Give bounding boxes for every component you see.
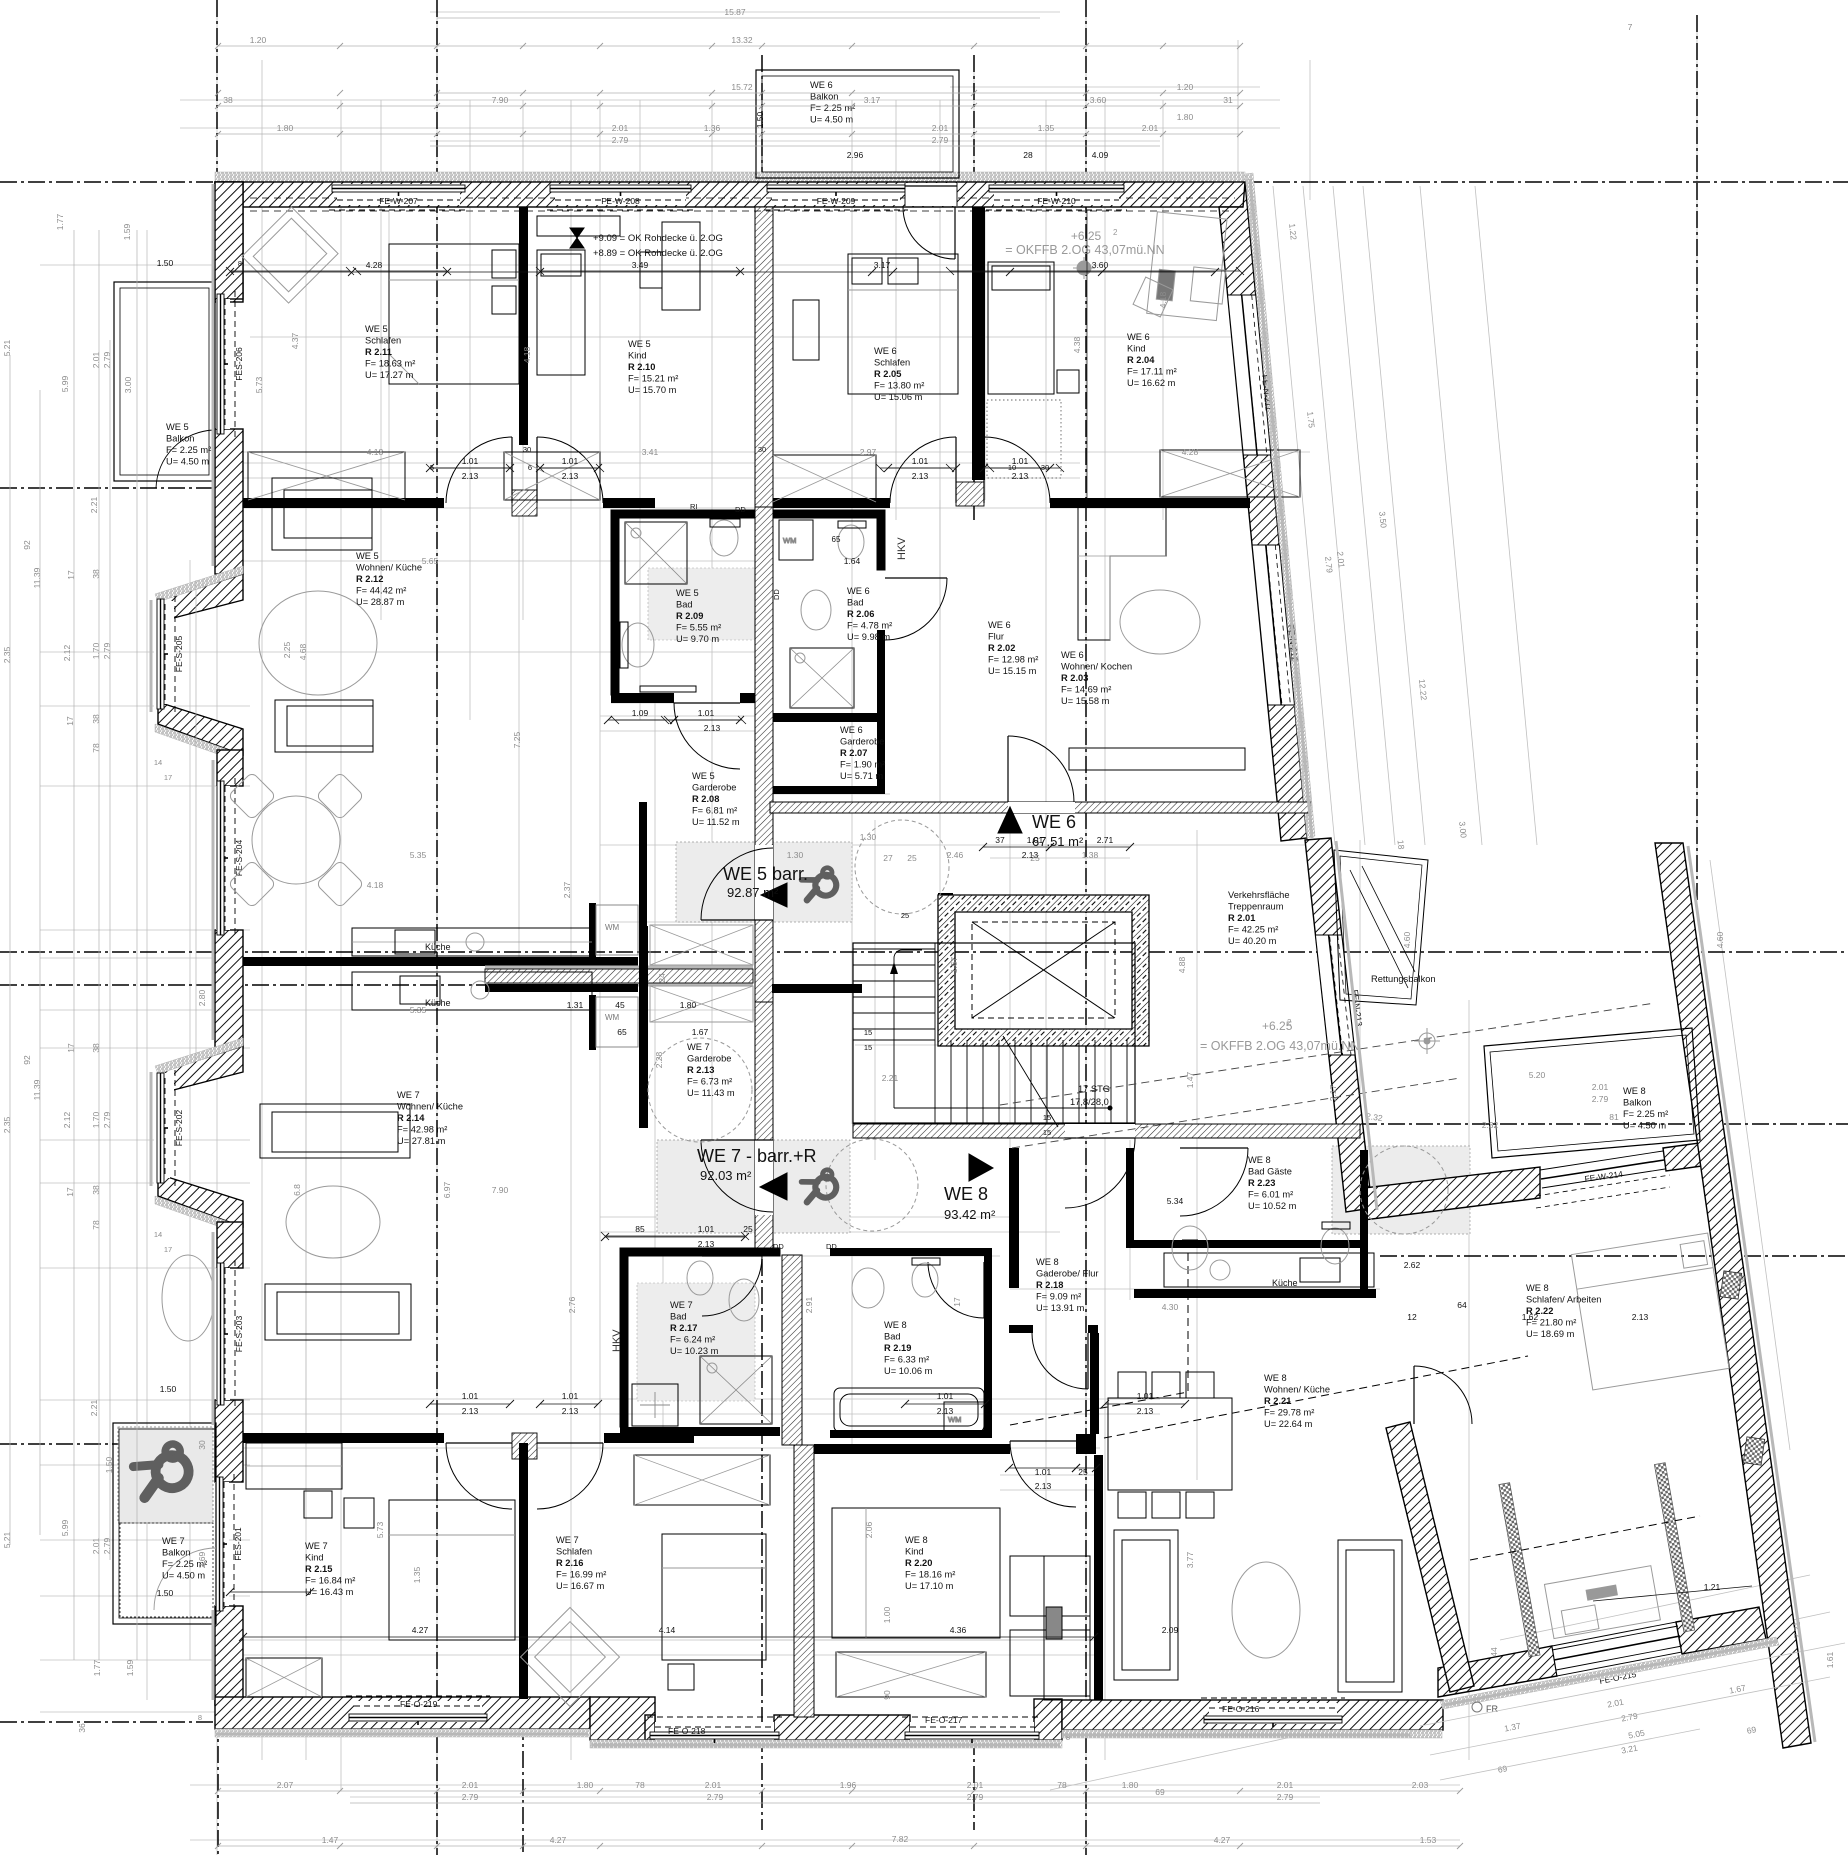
svg-text:WM: WM xyxy=(783,536,796,545)
svg-text:2.13: 2.13 xyxy=(912,471,929,481)
svg-text:1.36: 1.36 xyxy=(704,123,721,133)
svg-text:2.79: 2.79 xyxy=(1592,1094,1609,1104)
svg-text:2.13: 2.13 xyxy=(462,471,479,481)
svg-text:F= 6.81 m²: F= 6.81 m² xyxy=(692,806,737,816)
svg-text:Bad: Bad xyxy=(847,598,864,608)
svg-text:R 2.20: R 2.20 xyxy=(905,1558,932,1568)
svg-text:17: 17 xyxy=(164,773,172,782)
svg-text:2.62: 2.62 xyxy=(1404,1260,1421,1270)
svg-text:F= 44.42 m²: F= 44.42 m² xyxy=(356,586,406,596)
svg-text:2.13: 2.13 xyxy=(462,1406,479,1416)
svg-text:U= 15.06 m: U= 15.06 m xyxy=(874,392,923,402)
svg-text:17: 17 xyxy=(65,716,75,726)
svg-text:12: 12 xyxy=(1407,1312,1417,1322)
svg-text:Garderobe: Garderobe xyxy=(840,737,884,747)
svg-text:F= 6.33 m²: F= 6.33 m² xyxy=(884,1355,929,1365)
svg-text:R 2.12: R 2.12 xyxy=(356,574,383,584)
svg-text:24: 24 xyxy=(657,973,667,983)
svg-text:Kind: Kind xyxy=(628,351,647,361)
svg-text:2.01: 2.01 xyxy=(1335,551,1347,569)
svg-text:1.75: 1.75 xyxy=(1305,411,1317,429)
svg-text:2.37: 2.37 xyxy=(562,881,572,898)
svg-text:WE 8: WE 8 xyxy=(884,1320,907,1330)
svg-text:2.07: 2.07 xyxy=(277,1780,294,1790)
svg-text:78: 78 xyxy=(635,1780,645,1790)
svg-text:R 2.13: R 2.13 xyxy=(687,1065,714,1075)
svg-text:1.20: 1.20 xyxy=(1177,82,1194,92)
svg-text:78: 78 xyxy=(91,743,101,753)
svg-text:15.72: 15.72 xyxy=(731,82,753,92)
svg-text:Treppenraum: Treppenraum xyxy=(1228,902,1284,912)
svg-text:1.77: 1.77 xyxy=(55,213,65,230)
svg-text:1.01: 1.01 xyxy=(1035,1467,1052,1477)
svg-text:4.27: 4.27 xyxy=(1214,1835,1231,1845)
svg-text:2.97: 2.97 xyxy=(860,447,877,457)
svg-text:FE-W-210: FE-W-210 xyxy=(1037,196,1076,206)
svg-text:1.50: 1.50 xyxy=(157,1588,174,1598)
svg-text:U= 18.69 m: U= 18.69 m xyxy=(1526,1329,1575,1339)
svg-text:6.8: 6.8 xyxy=(292,1184,302,1196)
svg-text:81: 81 xyxy=(1609,1112,1619,1122)
svg-text:Garderobe: Garderobe xyxy=(692,783,736,793)
svg-text:R 2.23: R 2.23 xyxy=(1248,1178,1275,1188)
svg-text:65: 65 xyxy=(832,535,841,544)
svg-text:7.25: 7.25 xyxy=(512,731,522,748)
svg-text:4.18: 4.18 xyxy=(367,447,384,457)
svg-text:F= 6.01 m²: F= 6.01 m² xyxy=(1248,1190,1293,1200)
svg-text:FE-O-216: FE-O-216 xyxy=(1222,1704,1260,1714)
svg-text:1.47: 1.47 xyxy=(1185,1071,1195,1088)
svg-text:2.09: 2.09 xyxy=(1162,1625,1179,1635)
svg-text:2: 2 xyxy=(1113,228,1118,237)
svg-text:15: 15 xyxy=(1043,1113,1051,1122)
svg-text:1.31: 1.31 xyxy=(567,1000,584,1010)
svg-text:FE-O-217: FE-O-217 xyxy=(925,1715,963,1725)
svg-text:2.01: 2.01 xyxy=(1592,1082,1609,1092)
svg-text:2.06: 2.06 xyxy=(864,1521,874,1538)
svg-text:2.46: 2.46 xyxy=(947,850,964,860)
svg-text:3.00: 3.00 xyxy=(123,376,133,393)
svg-text:U= 10.06 m: U= 10.06 m xyxy=(884,1366,933,1376)
svg-text:= OKFFB 2.OG 43,07mü.NN: = OKFFB 2.OG 43,07mü.NN xyxy=(1005,243,1164,257)
svg-text:Rettungsbalkon: Rettungsbalkon xyxy=(1371,974,1436,984)
svg-text:2.12: 2.12 xyxy=(62,644,72,661)
svg-text:10: 10 xyxy=(1008,463,1016,472)
svg-text:WE 5: WE 5 xyxy=(356,551,379,561)
svg-text:1.80: 1.80 xyxy=(1122,1780,1139,1790)
svg-text:FE-W-209: FE-W-209 xyxy=(817,196,856,206)
svg-text:Küche: Küche xyxy=(1272,1278,1298,1288)
svg-text:WE 8: WE 8 xyxy=(1036,1257,1059,1267)
svg-text:1.47: 1.47 xyxy=(322,1835,339,1845)
svg-text:Kind: Kind xyxy=(905,1547,924,1557)
svg-text:Schlafen: Schlafen xyxy=(556,1547,592,1557)
svg-text:7.82: 7.82 xyxy=(892,1834,909,1844)
svg-text:14: 14 xyxy=(154,758,162,767)
svg-text:2.35: 2.35 xyxy=(2,646,12,663)
svg-text:30: 30 xyxy=(523,445,531,454)
svg-text:2.01: 2.01 xyxy=(967,1780,984,1790)
svg-text:45: 45 xyxy=(615,1000,625,1010)
svg-text:+8.89 = OK Rohdecke ü. 2.OG: +8.89 = OK Rohdecke ü. 2.OG xyxy=(593,248,723,259)
svg-text:R 2.02: R 2.02 xyxy=(988,643,1015,653)
svg-text:4.60: 4.60 xyxy=(1715,931,1725,948)
svg-text:4.36: 4.36 xyxy=(950,1625,967,1635)
svg-text:WE 8: WE 8 xyxy=(905,1535,928,1545)
svg-text:4.37: 4.37 xyxy=(290,332,300,349)
svg-text:U= 11.52 m: U= 11.52 m xyxy=(692,817,740,827)
svg-text:92.03 m²: 92.03 m² xyxy=(700,1168,752,1183)
svg-text:U= 11.43 m: U= 11.43 m xyxy=(687,1088,735,1098)
svg-text:U= 4.50 m: U= 4.50 m xyxy=(810,115,853,125)
svg-text:1.80: 1.80 xyxy=(577,1780,594,1790)
svg-text:WE 6: WE 6 xyxy=(1127,332,1150,342)
svg-text:8: 8 xyxy=(198,1713,202,1722)
svg-text:90: 90 xyxy=(882,1690,892,1700)
svg-text:6: 6 xyxy=(528,463,532,472)
svg-text:5.73: 5.73 xyxy=(375,1521,385,1538)
svg-text:WE 7: WE 7 xyxy=(305,1541,328,1551)
svg-text:1.09: 1.09 xyxy=(632,708,649,718)
svg-text:Verkehrsfläche: Verkehrsfläche xyxy=(1228,890,1290,900)
svg-text:Gaderobe/ Flur: Gaderobe/ Flur xyxy=(1036,1269,1099,1279)
svg-text:2.79: 2.79 xyxy=(932,135,949,145)
svg-text:2.96: 2.96 xyxy=(847,150,864,160)
svg-text:1.70: 1.70 xyxy=(91,642,101,659)
svg-text:F= 18.63 m²: F= 18.63 m² xyxy=(365,359,415,369)
svg-text:WE 5: WE 5 xyxy=(365,324,388,334)
svg-text:WE 5: WE 5 xyxy=(628,339,651,349)
svg-text:17: 17 xyxy=(65,1187,75,1197)
svg-text:2.69: 2.69 xyxy=(197,1551,207,1568)
svg-text:R 2.15: R 2.15 xyxy=(305,1564,332,1574)
svg-text:3.49: 3.49 xyxy=(632,260,649,270)
svg-text:4.88: 4.88 xyxy=(1177,956,1187,973)
svg-text:2.32: 2.32 xyxy=(1482,1120,1499,1130)
svg-text:U= 17.27 m: U= 17.27 m xyxy=(365,370,414,380)
svg-text:1.01: 1.01 xyxy=(562,1391,579,1401)
svg-text:7.90: 7.90 xyxy=(492,1185,509,1195)
svg-text:Bad: Bad xyxy=(884,1332,901,1342)
svg-text:1.70: 1.70 xyxy=(91,1111,101,1128)
svg-text:1.80: 1.80 xyxy=(277,123,294,133)
svg-text:WE 7: WE 7 xyxy=(162,1536,185,1546)
svg-text:3.60: 3.60 xyxy=(1090,95,1107,105)
svg-text:WM: WM xyxy=(605,1013,620,1022)
svg-text:2.76: 2.76 xyxy=(567,1296,577,1313)
svg-text:27: 27 xyxy=(883,853,893,863)
svg-text:U= 10.52 m: U= 10.52 m xyxy=(1248,1201,1297,1211)
svg-text:WE 6: WE 6 xyxy=(1061,650,1084,660)
svg-text:R 2.17: R 2.17 xyxy=(670,1323,697,1333)
svg-text:1.67: 1.67 xyxy=(949,956,959,973)
svg-text:F= 13.80 m²: F= 13.80 m² xyxy=(874,381,924,391)
svg-text:2.79: 2.79 xyxy=(967,1792,984,1802)
svg-text:2.17: 2.17 xyxy=(1328,1084,1338,1101)
svg-text:85: 85 xyxy=(635,1224,645,1234)
svg-text:U= 10.23 m: U= 10.23 m xyxy=(670,1346,719,1356)
svg-text:92.87 m²: 92.87 m² xyxy=(727,885,779,900)
svg-text:2.01: 2.01 xyxy=(91,1537,101,1554)
svg-text:7.90: 7.90 xyxy=(492,95,509,105)
svg-text:2.79: 2.79 xyxy=(1323,556,1335,574)
svg-text:2.01: 2.01 xyxy=(612,123,629,133)
svg-text:FE-W-208: FE-W-208 xyxy=(601,196,640,206)
svg-text:2.01: 2.01 xyxy=(1142,123,1159,133)
svg-text:4.18: 4.18 xyxy=(522,346,532,363)
svg-text:U= 15.70 m: U= 15.70 m xyxy=(628,385,677,395)
svg-text:38: 38 xyxy=(91,569,101,579)
svg-text:F= 18.16 m²: F= 18.16 m² xyxy=(905,1570,955,1580)
svg-text:2.13: 2.13 xyxy=(704,723,721,733)
svg-text:1.67: 1.67 xyxy=(692,1027,709,1037)
svg-text:U= 4.50 m: U= 4.50 m xyxy=(162,1571,205,1581)
svg-text:WM: WM xyxy=(948,1415,961,1424)
svg-text:U= 16.43 m: U= 16.43 m xyxy=(305,1587,354,1597)
svg-text:F= 29.78 m²: F= 29.78 m² xyxy=(1264,1408,1314,1418)
svg-text:69: 69 xyxy=(1155,1787,1165,1797)
svg-text:R 2.21: R 2.21 xyxy=(1264,1396,1291,1406)
svg-text:= OKFFB 2.OG 43,07mü.NN: = OKFFB 2.OG 43,07mü.NN xyxy=(1200,1039,1359,1053)
svg-text:2.13: 2.13 xyxy=(1035,1481,1052,1491)
svg-text:R 2.08: R 2.08 xyxy=(692,794,719,804)
svg-text:1.64: 1.64 xyxy=(844,556,861,566)
svg-text:2.13: 2.13 xyxy=(562,471,579,481)
svg-text:Kind: Kind xyxy=(305,1553,324,1563)
svg-text:5.21: 5.21 xyxy=(2,339,12,356)
svg-text:65: 65 xyxy=(617,1027,627,1037)
svg-text:R 2.07: R 2.07 xyxy=(840,748,867,758)
svg-text:F= 17.11 m²: F= 17.11 m² xyxy=(1127,367,1177,377)
svg-text:7: 7 xyxy=(1628,22,1633,32)
svg-text:DD: DD xyxy=(772,589,781,600)
svg-text:13.32: 13.32 xyxy=(731,35,753,45)
svg-text:Balkon: Balkon xyxy=(1623,1098,1651,1108)
svg-text:18: 18 xyxy=(1396,839,1407,850)
svg-text:17: 17 xyxy=(164,1245,172,1254)
svg-text:F= 16.84 m²: F= 16.84 m² xyxy=(305,1576,355,1586)
svg-text:2.79: 2.79 xyxy=(707,1792,724,1802)
svg-text:1.01: 1.01 xyxy=(937,1391,954,1401)
svg-text:F= 2.25 m²: F= 2.25 m² xyxy=(1623,1109,1668,1119)
svg-text:Wohnen/ Küche: Wohnen/ Küche xyxy=(1264,1385,1330,1395)
svg-text:2.79: 2.79 xyxy=(462,1792,479,1802)
svg-text:U= 4.50 m: U= 4.50 m xyxy=(1623,1121,1666,1131)
svg-text:RI: RI xyxy=(690,502,698,511)
svg-text:U= 13.91 m: U= 13.91 m xyxy=(1036,1303,1085,1313)
svg-text:2.21: 2.21 xyxy=(89,496,99,513)
svg-text:2.13: 2.13 xyxy=(1012,471,1029,481)
svg-text:F= 42.25 m²: F= 42.25 m² xyxy=(1228,925,1278,935)
svg-text:5.21: 5.21 xyxy=(2,1531,12,1548)
svg-text:F= 14.69 m²: F= 14.69 m² xyxy=(1061,685,1111,695)
svg-text:38: 38 xyxy=(91,714,101,724)
svg-text:FES-206: FES-206 xyxy=(234,347,244,381)
svg-text:2.35: 2.35 xyxy=(2,1116,12,1133)
svg-text:F= 2.25 m²: F= 2.25 m² xyxy=(810,103,855,113)
svg-text:38: 38 xyxy=(91,1043,101,1053)
svg-text:4.28: 4.28 xyxy=(1182,447,1199,457)
svg-text:HKV: HKV xyxy=(611,1329,623,1352)
svg-text:1.20: 1.20 xyxy=(250,35,267,45)
svg-text:11.39: 11.39 xyxy=(32,567,42,588)
svg-text:DD: DD xyxy=(826,1242,837,1251)
svg-text:3.00: 3.00 xyxy=(1457,821,1469,839)
svg-text:Schlafen: Schlafen xyxy=(874,358,910,368)
svg-text:1.01: 1.01 xyxy=(912,456,929,466)
svg-text:1.61: 1.61 xyxy=(1825,1651,1835,1668)
svg-text:FE-S-204: FE-S-204 xyxy=(234,840,244,877)
svg-text:17 STG: 17 STG xyxy=(1078,1084,1110,1094)
svg-text:4.68: 4.68 xyxy=(298,643,308,660)
svg-text:92: 92 xyxy=(22,1055,32,1065)
svg-text:1.53: 1.53 xyxy=(1420,1835,1437,1845)
svg-text:15: 15 xyxy=(864,1043,872,1052)
svg-text:Balkon: Balkon xyxy=(162,1548,190,1558)
svg-text:2.91: 2.91 xyxy=(804,1296,814,1313)
svg-text:44: 44 xyxy=(1489,1647,1499,1657)
svg-text:F= 9.09 m²: F= 9.09 m² xyxy=(1036,1292,1081,1302)
svg-text:WE 8: WE 8 xyxy=(1526,1283,1549,1293)
svg-text:R 2.06: R 2.06 xyxy=(847,609,874,619)
svg-text:F= 2.25 m²: F= 2.25 m² xyxy=(166,445,211,455)
svg-text:WM: WM xyxy=(605,923,620,932)
svg-text:Bad: Bad xyxy=(670,1312,687,1322)
svg-text:WE 8: WE 8 xyxy=(1248,1155,1271,1165)
svg-text:14: 14 xyxy=(154,1230,162,1239)
svg-text:2.03: 2.03 xyxy=(1412,1780,1429,1790)
svg-text:FE-O-218: FE-O-218 xyxy=(668,1726,706,1736)
svg-text:3.77: 3.77 xyxy=(1185,1551,1195,1568)
svg-text:78: 78 xyxy=(1057,1780,1067,1790)
svg-text:15: 15 xyxy=(864,1028,872,1037)
svg-text:Schlafen: Schlafen xyxy=(365,336,401,346)
svg-text:F= 5.55 m²: F= 5.55 m² xyxy=(676,623,721,633)
svg-text:2.21: 2.21 xyxy=(89,1399,99,1416)
svg-text:2.71: 2.71 xyxy=(1097,835,1114,845)
svg-text:2.79: 2.79 xyxy=(102,351,112,368)
svg-text:4.18: 4.18 xyxy=(1158,291,1168,308)
svg-text:2.13: 2.13 xyxy=(937,1406,954,1416)
svg-text:WE 6: WE 6 xyxy=(847,586,870,596)
svg-text:1.30: 1.30 xyxy=(787,850,804,860)
svg-text:5.20: 5.20 xyxy=(1529,1070,1546,1080)
svg-text:1.35: 1.35 xyxy=(1038,123,1055,133)
svg-text:4.38: 4.38 xyxy=(1072,336,1082,353)
svg-text:17: 17 xyxy=(66,570,76,580)
svg-text:Kind: Kind xyxy=(1127,344,1146,354)
svg-text:3.50: 3.50 xyxy=(1377,511,1389,529)
svg-text:2.79: 2.79 xyxy=(102,1111,112,1128)
svg-text:1.22: 1.22 xyxy=(1287,223,1299,241)
svg-text:WE 5: WE 5 xyxy=(166,422,189,432)
svg-text:1.59: 1.59 xyxy=(122,223,132,240)
svg-text:U= 17.10 m: U= 17.10 m xyxy=(905,1581,954,1591)
svg-text:WE 8: WE 8 xyxy=(1623,1086,1646,1096)
svg-text:WE 6: WE 6 xyxy=(874,346,897,356)
svg-text:R 2.18: R 2.18 xyxy=(1036,1280,1063,1290)
svg-text:2.01: 2.01 xyxy=(462,1780,479,1790)
svg-text:4.60: 4.60 xyxy=(1402,931,1412,948)
svg-text:WE 5: WE 5 xyxy=(692,771,715,781)
svg-text:25: 25 xyxy=(901,911,909,920)
svg-text:5.35: 5.35 xyxy=(410,850,427,860)
svg-text:1.01: 1.01 xyxy=(462,456,479,466)
svg-text:5.99: 5.99 xyxy=(60,1519,70,1536)
svg-text:R 2.16: R 2.16 xyxy=(556,1558,583,1568)
svg-text:17,8/28,0: 17,8/28,0 xyxy=(1070,1097,1109,1107)
svg-text:78: 78 xyxy=(91,1220,101,1230)
svg-text:FE-O-219: FE-O-219 xyxy=(400,1699,438,1709)
svg-text:R 2.11: R 2.11 xyxy=(365,347,392,357)
svg-text:U= 27.81 m: U= 27.81 m xyxy=(397,1136,446,1146)
svg-text:17: 17 xyxy=(952,1297,962,1307)
svg-text:WE 7: WE 7 xyxy=(397,1090,420,1100)
svg-text:F= 6.73 m²: F= 6.73 m² xyxy=(687,1077,732,1087)
svg-text:1.62: 1.62 xyxy=(1522,1312,1539,1322)
svg-text:8: 8 xyxy=(238,259,242,268)
svg-text:1.01: 1.01 xyxy=(562,456,579,466)
svg-text:38: 38 xyxy=(223,95,233,105)
svg-text:WE 6: WE 6 xyxy=(810,80,833,90)
svg-text:Balkon: Balkon xyxy=(166,434,194,444)
svg-text:37: 37 xyxy=(995,835,1005,845)
svg-text:F= 15.21 m²: F= 15.21 m² xyxy=(628,374,678,384)
svg-text:R 2.03: R 2.03 xyxy=(1061,673,1088,683)
svg-text:Wohnen/ Kochen: Wohnen/ Kochen xyxy=(1061,662,1132,672)
svg-text:2.12: 2.12 xyxy=(62,1111,72,1128)
svg-text:2.01: 2.01 xyxy=(932,123,949,133)
svg-text:2.13: 2.13 xyxy=(1137,1406,1154,1416)
svg-text:4.28: 4.28 xyxy=(366,260,383,270)
svg-text:R 2.09: R 2.09 xyxy=(676,611,703,621)
svg-text:WE 7: WE 7 xyxy=(556,1535,579,1545)
svg-text:F= 4.78 m²: F= 4.78 m² xyxy=(847,621,892,631)
svg-text:93.42 m²: 93.42 m² xyxy=(944,1207,996,1222)
svg-text:2.79: 2.79 xyxy=(1277,1792,1294,1802)
svg-text:1.01: 1.01 xyxy=(1027,835,1044,845)
svg-text:1.77: 1.77 xyxy=(92,1659,102,1676)
svg-text:11.39: 11.39 xyxy=(32,1079,42,1100)
svg-text:25: 25 xyxy=(1078,1467,1088,1477)
svg-text:36: 36 xyxy=(1737,1275,1747,1285)
svg-text:4.27: 4.27 xyxy=(412,1625,429,1635)
svg-text:1.38: 1.38 xyxy=(1082,850,1099,860)
svg-text:25: 25 xyxy=(1030,853,1040,863)
svg-text:2.21: 2.21 xyxy=(882,1073,899,1083)
svg-text:R 2.05: R 2.05 xyxy=(874,369,901,379)
svg-text:4.27: 4.27 xyxy=(550,1835,567,1845)
svg-text:2.13: 2.13 xyxy=(1632,1312,1649,1322)
svg-text:3.41: 3.41 xyxy=(642,447,659,457)
svg-text:30: 30 xyxy=(758,445,766,454)
svg-text:WE 7 - barr.+R: WE 7 - barr.+R xyxy=(697,1146,817,1166)
svg-text:5.73: 5.73 xyxy=(254,376,264,393)
svg-text:1.50: 1.50 xyxy=(160,1384,177,1394)
svg-text:92: 92 xyxy=(22,540,32,550)
svg-text:DD: DD xyxy=(773,1242,784,1251)
svg-text:F= 42.98 m²: F= 42.98 m² xyxy=(397,1125,447,1135)
svg-text:F= 16.99 m²: F= 16.99 m² xyxy=(556,1570,606,1580)
svg-text:WE 8: WE 8 xyxy=(944,1184,988,1204)
svg-text:WE 6: WE 6 xyxy=(1032,812,1076,832)
svg-text:F= 6.24 m²: F= 6.24 m² xyxy=(670,1335,715,1345)
svg-text:3.17: 3.17 xyxy=(864,95,881,105)
svg-text:Flur: Flur xyxy=(988,632,1004,642)
svg-text:U= 15.58 m: U= 15.58 m xyxy=(1061,696,1110,706)
svg-text:28: 28 xyxy=(1023,150,1033,160)
svg-text:Küche: Küche xyxy=(425,942,451,952)
